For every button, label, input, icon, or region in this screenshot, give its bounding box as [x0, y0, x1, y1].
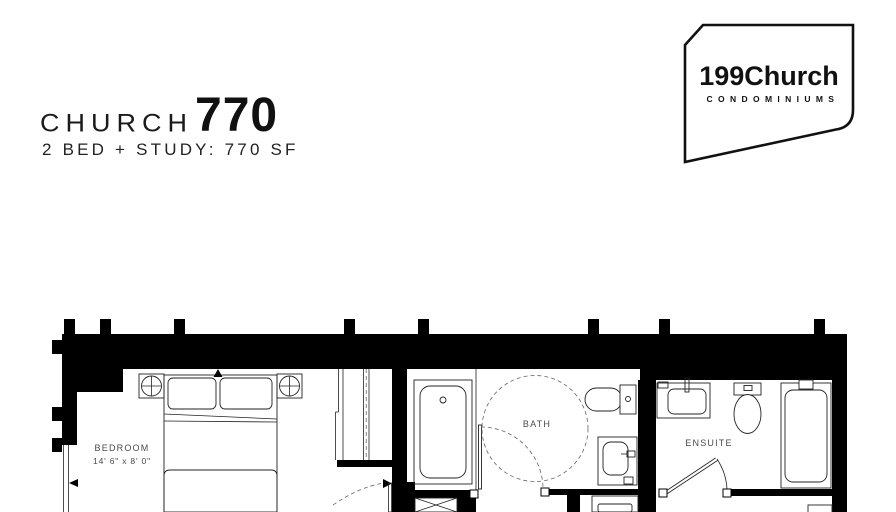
toilet-bowl-ensuite — [734, 395, 761, 434]
toilet-tank-ensuite — [734, 383, 761, 395]
toilet-bowl-bath — [585, 388, 622, 411]
page-title: CHURCH 770 — [40, 88, 278, 143]
bathtub-ensuite — [785, 390, 827, 482]
ensuite-door — [666, 458, 727, 494]
sink-ensuite — [668, 389, 706, 414]
toilet-tank-bath — [620, 385, 636, 414]
wall-bath-bottom — [549, 489, 638, 495]
wall-top-band — [62, 334, 648, 369]
shaft-box — [415, 498, 457, 512]
bedroom: BEDROOM 14' 6" x 8' 0" — [93, 369, 392, 512]
bed — [164, 375, 277, 512]
bedroom-door — [333, 479, 392, 512]
bathtub-surround — [414, 380, 472, 484]
logo-brand-text: 199Church — [699, 61, 839, 91]
bath-door-swing — [481, 427, 543, 489]
window-wall — [64, 445, 79, 512]
bathtub-ensuite-surround — [781, 383, 831, 488]
sink-bath — [603, 442, 628, 475]
walls — [52, 319, 847, 512]
closet-doors — [336, 369, 370, 460]
pillow-right — [220, 378, 272, 409]
plan-subtitle: 2 BED + STUDY: 770 SF — [42, 140, 299, 160]
title-plan-name: CHURCH — [40, 109, 193, 138]
wall-right — [832, 334, 847, 512]
bed-blanket — [164, 470, 277, 512]
bedroom-label: BEDROOM — [95, 443, 150, 453]
ensuite-label: ENSUITE — [685, 438, 732, 448]
tub-faucet-ensuite-icon — [799, 380, 813, 389]
wall-bath-ensuite — [638, 380, 656, 512]
floorplan-page: CHURCH 770 2 BED + STUDY: 770 SF 199Chur… — [0, 0, 896, 512]
wall-marker-arrow-icon — [214, 369, 223, 377]
brand-logo: 199Church C O N D O M I N I U M S — [678, 18, 858, 168]
faucet-ensuite-icon — [685, 378, 689, 392]
bathtub — [420, 386, 466, 478]
logo-tagline-text: C O N D O M I N I U M S — [707, 94, 836, 104]
ensuite-door-swing — [717, 459, 727, 489]
tub-drain-icon — [440, 397, 446, 403]
title-plan-number: 770 — [195, 88, 278, 143]
window-marker-arrow-icon — [69, 479, 78, 487]
wall-ensuite-bottom — [731, 489, 832, 496]
wall-top-band-ensuite — [640, 334, 843, 380]
wall-closet-bottom — [337, 460, 400, 467]
door-arrow-icon — [383, 479, 392, 488]
vanity-bath — [598, 437, 637, 485]
bath-door-leaf — [479, 425, 482, 489]
bedroom-dimensions: 14' 6" x 8' 0" — [93, 456, 151, 466]
pillow-left — [168, 378, 216, 409]
floorplan-drawing: BEDROOM 14' 6" x 8' 0" — [0, 300, 896, 512]
bath-label: BATH — [523, 419, 551, 429]
wall-left-column — [62, 334, 77, 445]
